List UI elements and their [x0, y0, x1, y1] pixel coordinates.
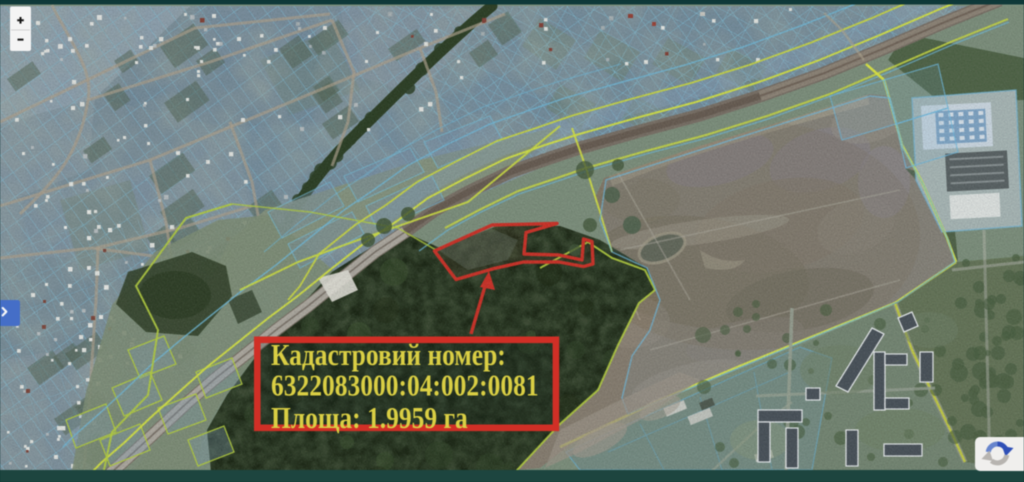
svg-text:Кадастровий номер:: Кадастровий номер:	[271, 339, 506, 373]
svg-text:Площа: 1.9959 га: Площа: 1.9959 га	[271, 402, 468, 436]
svg-text:6322083000:04:002:0081: 6322083000:04:002:0081	[271, 369, 539, 403]
